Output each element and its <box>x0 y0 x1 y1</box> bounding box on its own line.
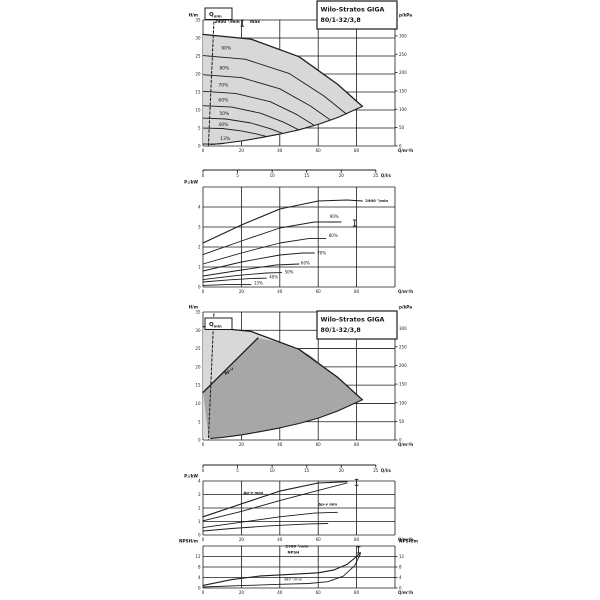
x-tick: 60 <box>316 442 322 447</box>
power-label-50: 50% <box>285 269 294 274</box>
y-axis-header: H/m <box>189 13 199 18</box>
y-tick: 0 <box>198 438 201 443</box>
speed-label-80: 80% <box>219 65 230 71</box>
npsh-label-nmax: 2900 ¹/min <box>286 544 309 549</box>
y-tick: 35 <box>195 18 201 23</box>
y2-tick: 200 <box>399 363 407 368</box>
power-label-nmax: 2900 ¹/min <box>365 198 388 203</box>
y-tick: 3 <box>198 492 201 497</box>
y2-tick: 300 <box>399 34 407 39</box>
chart-power-dpv-curves: 43210020406080Q/m³/hP₁/kWΔp-v maxΔp-v mi… <box>184 474 413 543</box>
y-tick: 35 <box>195 310 201 315</box>
x2-tick: 15 <box>304 468 310 473</box>
tolerance-marker <box>355 479 359 485</box>
y-tick: 1 <box>198 519 201 524</box>
tolerance-marker <box>357 547 361 553</box>
y-tick: 0 <box>198 533 201 538</box>
y2-tick: 150 <box>399 89 407 94</box>
x2-axis-unit: Q/l/s <box>381 468 392 473</box>
x-tick: 0 <box>202 537 205 542</box>
y-tick: 20 <box>195 364 201 369</box>
y-tick: 4 <box>198 575 201 580</box>
x2-tick: 0 <box>202 468 205 473</box>
x-tick: 20 <box>239 442 245 447</box>
axis-labels: 43210020406080Q/m³/hP₁/kW <box>184 180 413 295</box>
x-tick: 60 <box>316 289 322 294</box>
dpv-max-label: Δp-v max <box>243 490 264 495</box>
y-tick: 1 <box>198 265 201 270</box>
y2-axis-header: p/kPa <box>399 13 412 18</box>
y-tick: 15 <box>195 90 201 95</box>
y-tick: 0 <box>198 144 201 149</box>
product-title-line2: 80/1-32/3,8 <box>321 327 361 334</box>
y-tick: 3 <box>198 225 201 230</box>
power-label-40: 40% <box>269 275 278 280</box>
y-tick: 30 <box>195 36 201 41</box>
x-tick: 40 <box>277 148 283 153</box>
grid <box>203 481 395 535</box>
x2-tick: 10 <box>270 173 276 178</box>
x2-tick: 25 <box>373 468 379 473</box>
x-tick: 80 <box>354 148 360 153</box>
product-title-box: Wilo-Stratos GIGA80/1-32/3,8 <box>317 1 397 29</box>
y2-tick: 250 <box>399 52 407 57</box>
x2-tick: 20 <box>339 468 345 473</box>
y-tick: 12 <box>195 554 201 559</box>
qmin-badge: Qmin <box>205 8 232 20</box>
x-tick: 80 <box>354 590 360 595</box>
speed-label-max: max <box>250 19 260 24</box>
qmin-label: Qmin <box>209 12 222 18</box>
x2-tick: 0 <box>202 173 205 178</box>
x-tick: 0 <box>202 442 205 447</box>
y-tick: 2 <box>198 506 201 511</box>
x2-tick: 15 <box>304 173 310 178</box>
power-curve-13 <box>203 284 251 285</box>
y-tick: 25 <box>195 346 201 351</box>
dpv-min-label: Δp-v min <box>318 501 337 506</box>
x-tick: 20 <box>239 289 245 294</box>
x-tick: 0 <box>202 289 205 294</box>
speed-label-70: 70% <box>218 83 229 89</box>
x-tick: 20 <box>239 148 245 153</box>
power-label-70: 70% <box>317 251 326 256</box>
qmin-label: Qmin <box>209 322 222 328</box>
y2-axis-header: NPSH/m <box>399 539 419 544</box>
y2-tick: 4 <box>399 575 402 580</box>
y-tick: 4 <box>198 479 201 484</box>
x-tick: 20 <box>239 590 245 595</box>
x-tick: 60 <box>316 590 322 595</box>
chart-npsh-curves: 12840020406080Q/m³/hNPSH/mNPSH/m12840290… <box>179 539 419 596</box>
y-tick: 0 <box>198 285 201 290</box>
secondary-flow-axis: 0510152025Q/l/s <box>202 170 392 178</box>
y-tick: 2 <box>198 245 201 250</box>
y-tick: 30 <box>195 328 201 333</box>
product-title-line1: Wilo-Stratos GIGA <box>321 7 385 14</box>
power-dpv-mid <box>203 512 337 527</box>
x-tick: 60 <box>316 148 322 153</box>
y-axis-header: H/m <box>189 305 199 310</box>
x2-tick: 25 <box>373 173 379 178</box>
y-axis-header: P₁/kW <box>184 474 198 479</box>
power-dpc-max <box>203 482 347 517</box>
y2-tick: 150 <box>399 382 407 387</box>
y2-tick: 300 <box>399 326 407 331</box>
y-tick: 8 <box>198 565 201 570</box>
speed-label-90: 90% <box>221 46 232 52</box>
y2-tick: 8 <box>399 565 402 570</box>
x-tick: 80 <box>354 442 360 447</box>
x-tick: 80 <box>354 289 360 294</box>
y2-tick: 50 <box>399 125 405 130</box>
x-tick: 60 <box>316 537 322 542</box>
product-title-line2: 80/1-32/3,8 <box>321 17 361 24</box>
y2-tick: 100 <box>399 400 407 405</box>
x-tick: 20 <box>239 537 245 542</box>
x2-axis-unit: Q/l/s <box>381 173 392 178</box>
x2-tick: 20 <box>339 173 345 178</box>
power-label-90: 90% <box>330 214 339 219</box>
y-tick: 0 <box>198 586 201 591</box>
npsh-curve-nmin <box>203 554 360 587</box>
npsh-label-npsh: NPSH <box>287 549 299 554</box>
secondary-flow-axis: 0510152025Q/l/s <box>202 465 392 473</box>
pump-datasheet-page: 35302520151050020406080Q/m³/hH/mp/kPa300… <box>0 0 600 600</box>
y2-tick: 12 <box>399 554 405 559</box>
y-tick: 5 <box>198 126 201 131</box>
speed-label-60: 60% <box>218 98 229 104</box>
product-title-box: Wilo-Stratos GIGA80/1-32/3,8 <box>317 311 397 339</box>
x-axis-unit: Q/m³/h <box>398 148 413 153</box>
chart-hq-field-speed-curves: 35302520151050020406080Q/m³/hH/mp/kPa300… <box>189 1 414 178</box>
speed-label-13: 13% <box>220 136 231 142</box>
qmin-badge: Qmin <box>205 318 232 330</box>
x-tick: 40 <box>277 442 283 447</box>
chart-hq-field-dpv-control: 35302520151050020406080Q/m³/hH/mp/kPa300… <box>189 305 414 474</box>
y-axis-header: P₁/kW <box>184 180 198 185</box>
x-axis-unit: Q/m³/h <box>398 289 413 294</box>
x-tick: 0 <box>202 148 205 153</box>
pump-curves-canvas: 35302520151050020406080Q/m³/hH/mp/kPa300… <box>0 0 600 600</box>
y-tick: 20 <box>195 72 201 77</box>
power-curve-70 <box>203 253 314 271</box>
x2-tick: 5 <box>236 173 239 178</box>
x2-tick: 10 <box>270 468 276 473</box>
y-tick: 10 <box>195 401 201 406</box>
x-tick: 40 <box>277 590 283 595</box>
npsh-curve-nmax <box>203 553 360 586</box>
x-tick: 40 <box>277 289 283 294</box>
power-label-60: 60% <box>301 261 310 266</box>
y-tick: 25 <box>195 54 201 59</box>
y2-tick: 250 <box>399 344 407 349</box>
y2-tick: 50 <box>399 419 405 424</box>
x-tick: 40 <box>277 537 283 542</box>
product-title-line1: Wilo-Stratos GIGA <box>321 317 385 324</box>
y-tick: 15 <box>195 383 201 388</box>
x2-tick: 5 <box>236 468 239 473</box>
tolerance-marker <box>353 220 357 226</box>
power-label-13: 13% <box>254 281 263 286</box>
y2-tick: 100 <box>399 107 407 112</box>
y-axis-header: NPSH/m <box>179 539 199 544</box>
chart-power-speed-curves: 43210020406080Q/m³/hP₁/kW2900 ¹/min90%80… <box>184 180 413 295</box>
x-tick: 0 <box>202 590 205 595</box>
y-tick: 10 <box>195 108 201 113</box>
y-tick: 5 <box>198 419 201 424</box>
power-label-80: 80% <box>329 233 338 238</box>
x-tick: 80 <box>354 537 360 542</box>
speed-label-50: 50% <box>219 111 230 117</box>
y2-axis-header: p/kPa <box>399 305 412 310</box>
power-curve-max <box>203 200 362 243</box>
speed-label-40: 40% <box>218 122 229 128</box>
y-tick: 4 <box>198 205 201 210</box>
x-axis-unit: Q/m³/h <box>398 590 413 595</box>
y2-tick: 200 <box>399 70 407 75</box>
npsh-label-nmin: 380 ¹/min <box>284 576 303 581</box>
x-axis-unit: Q/m³/h <box>398 442 413 447</box>
